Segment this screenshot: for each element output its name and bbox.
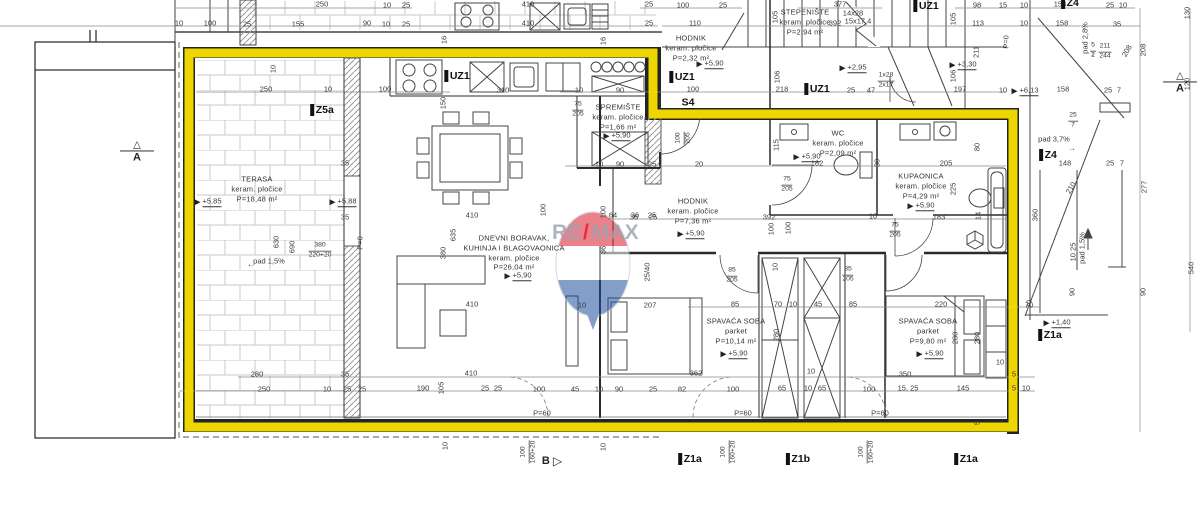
dimension-fraction: 100160+20 (859, 441, 876, 464)
dimension-label: P=60 (734, 409, 752, 417)
dimension-label: 377 (834, 0, 847, 8)
dimension-label: 10 (771, 263, 779, 271)
dimension-label: 145 (957, 384, 970, 392)
dimension-label: 10 (441, 442, 449, 450)
dimension-label: 85 (731, 300, 739, 308)
dimension-label: 410 (466, 300, 479, 308)
dimension-fraction: 100160+20 (521, 441, 538, 464)
section-triangle-icon: ▷ (553, 455, 562, 467)
dimension-label: 392 (829, 19, 842, 27)
dimension-label: 90 (363, 19, 371, 27)
dimension-label: 410 (522, 19, 535, 27)
dimension-label: 100 (677, 1, 690, 9)
dimension-label: 98 (973, 1, 981, 9)
reference-mark: UZ1 (444, 70, 469, 82)
section-triangle-icon: △ (1176, 71, 1184, 80)
dimension-label: 25 (402, 20, 410, 28)
dimension-label: 90 (616, 160, 624, 168)
reference-mark: S4 (682, 97, 695, 109)
dimension-label: 110 (689, 19, 701, 27)
section-marker: △A (120, 140, 154, 163)
mark-bar-icon (444, 70, 448, 82)
dimension-label: 158 (1056, 19, 1069, 27)
floor-plan: RE / MAX 2501025410251002537714x28981510… (0, 0, 1200, 506)
dimension-label: 10 (1022, 384, 1030, 392)
dimension-label: 100 (863, 385, 876, 393)
dimension-label: 350 (899, 370, 912, 378)
dimension-label: 205 (940, 159, 953, 167)
dimension-label: 15 (999, 1, 1007, 9)
dimension-label: 250 (258, 385, 271, 393)
elevation-label: +5,88 (330, 197, 357, 207)
dimension-label: 35 (341, 159, 349, 167)
dimension-label: 15x17,4 (845, 17, 872, 25)
annotation-layer: 2501025410251002537714x28981510158251010… (0, 0, 1200, 506)
reference-mark: Z5a (310, 104, 334, 116)
dimension-fraction: 85205 (842, 267, 853, 284)
dimension-label: 410 (466, 211, 479, 219)
elevation-label: +2,95 (840, 63, 867, 73)
dimension-label: P=60 (871, 409, 889, 417)
dimension-label: pad 3,7% (1038, 135, 1070, 143)
dimension-label: 25 (343, 385, 351, 393)
elevation-label: +5,90 (678, 229, 705, 239)
dimension-label: 105 (771, 11, 779, 24)
dimension-label: 7 (1117, 86, 1121, 94)
dimension-label: 207 (644, 301, 657, 309)
room-label: STEPENIŠTEkeram. pločiceP=2,94 m² (779, 7, 830, 36)
dimension-label: 64 (609, 211, 617, 219)
dimension-label: 36 (630, 213, 638, 221)
dimension-label: 15, 25 (898, 384, 919, 392)
dimension-label: 113 (972, 19, 984, 27)
reference-mark: Z1a (1038, 329, 1062, 341)
dimension-label: 10 (1119, 1, 1127, 9)
dimension-label: 211 (972, 46, 980, 58)
mark-bar-icon (669, 71, 673, 83)
slope-arrow-icon: ↑ (1087, 228, 1091, 236)
dimension-label: 25 (847, 86, 855, 94)
dimension-label: 360 (1031, 209, 1039, 222)
section-marker: △A (1163, 71, 1197, 94)
reference-mark: UZ1 (669, 71, 694, 83)
dimension-label: 65 (818, 384, 826, 392)
dimension-label: 630 (272, 236, 280, 249)
dimension-label: 208 (1139, 44, 1147, 57)
dimension-label: 45 (814, 300, 822, 308)
mark-bar-icon (804, 83, 808, 95)
dimension-label: 10 (269, 65, 277, 73)
dimension-fraction: 100205 (676, 131, 693, 144)
elevation-label: +5,90 (908, 201, 935, 211)
mark-bar-icon (786, 453, 790, 465)
dimension-label: 45 (571, 385, 579, 393)
dimension-label: 277 (1140, 181, 1148, 194)
dimension-fraction: 380220+20 (309, 243, 332, 260)
dimension-label: 25 (719, 1, 727, 9)
elevation-flag-icon (840, 65, 846, 71)
dimension-label: 150 (439, 97, 447, 110)
dimension-label: 158 (1057, 85, 1070, 93)
mark-bar-icon (1038, 329, 1042, 341)
dimension-label: 410 (522, 0, 535, 8)
elevation-flag-icon (1044, 320, 1050, 326)
section-triangle-icon: △ (133, 140, 141, 149)
dimension-label: 280 (772, 329, 780, 342)
elevation-flag-icon (1012, 88, 1018, 94)
dimension-label: P=0 (356, 236, 364, 250)
reference-mark: Z1b (786, 453, 810, 465)
dimension-label: 10 (804, 384, 812, 392)
dimension-label: 35 (341, 370, 349, 378)
mark-bar-icon (1061, 0, 1065, 9)
dimension-label: 10 (383, 1, 391, 9)
dimension-label: pad 1,5% (253, 257, 285, 265)
dimension-label: 10 (575, 86, 583, 94)
dimension-label: 90 (615, 385, 623, 393)
dimension-label: 250 (260, 85, 273, 93)
dimension-label: 25 (481, 384, 489, 392)
dimension-label: 10 (807, 367, 815, 375)
dimension-label: 10 (595, 385, 603, 393)
mark-bar-icon (310, 104, 314, 116)
dimension-label: 7 (1120, 159, 1124, 167)
dimension-fraction: 75205 (889, 223, 900, 240)
dimension-label: 10 (1020, 19, 1028, 27)
reference-mark: Z1a (678, 453, 702, 465)
dimension-fraction: 211244 (1099, 44, 1112, 61)
elevation-flag-icon (604, 133, 610, 139)
reference-mark: UZ1 (804, 83, 829, 95)
dimension-label: 105 (949, 13, 957, 26)
dimension-label: 380 (439, 247, 447, 260)
dimension-label: 392 (763, 213, 776, 221)
dimension-label: 10 (595, 160, 603, 168)
dimension-label: 208 (1121, 44, 1134, 59)
dimension-label: 30 (873, 159, 881, 167)
dimension-label: 82 (678, 385, 686, 393)
dimension-label: 90 (616, 86, 624, 94)
room-label: TERASAkeram. pločiceP=18,48 m² (231, 174, 282, 203)
room-label: SPAVAĆA SOBAparketP=10,14 m² (707, 316, 766, 345)
dimension-label: 410 (465, 369, 478, 377)
dimension-label: 70 (1025, 301, 1033, 309)
elevation-flag-icon (195, 199, 201, 205)
dimension-label: 65 (778, 384, 786, 392)
dimension-label: 25 (649, 385, 657, 393)
dimension-label: 25 (649, 213, 657, 221)
elevation-flag-icon (794, 154, 800, 160)
dimension-label: 70 (774, 300, 782, 308)
elevation-flag-icon (908, 203, 914, 209)
dimension-fraction: 75205 (781, 177, 792, 194)
elevation-flag-icon (950, 62, 956, 68)
dimension-label: 10 (382, 20, 390, 28)
dimension-fraction: 75205 (572, 102, 583, 119)
dimension-label: 106 (773, 71, 781, 84)
dimension-label: 100 (539, 204, 547, 217)
dimension-label: 10 (999, 86, 1007, 94)
elevation-label: +5,90 (604, 131, 631, 141)
dimension-label: 25 (494, 384, 502, 392)
slope-arrow-icon: ← (247, 260, 255, 268)
dimension-label: 100 (533, 385, 546, 393)
dimension-label: 10 (869, 212, 877, 220)
dimension-label: 362 (690, 369, 703, 377)
dimension-label: 130 (1183, 7, 1191, 20)
elevation-flag-icon (505, 273, 511, 279)
elevation-flag-icon (917, 351, 923, 357)
dimension-label: 105 (437, 382, 445, 395)
dimension-fraction: 257 (1068, 113, 1078, 130)
dimension-label: 25 (645, 19, 653, 27)
dimension-label: 35 (1113, 20, 1121, 28)
dimension-fraction: 100160+20 (721, 441, 738, 464)
dimension-label: 635 (449, 229, 457, 242)
dimension-label: 100 (687, 85, 700, 93)
dimension-label: pad 1,5% (1078, 232, 1086, 264)
dimension-label: 690 (288, 241, 296, 254)
dimension-label: 100 (599, 206, 607, 219)
dimension-label: 115 (772, 139, 780, 151)
dimension-label: 100 (204, 19, 217, 27)
dimension-label: 100 (727, 385, 740, 393)
dimension-label: 100 (784, 222, 792, 235)
dimension-label: 25 (358, 385, 366, 393)
dimension-label: 10 (324, 85, 332, 93)
dimension-label: 5 (973, 421, 981, 425)
dimension-label: 100 (379, 85, 392, 93)
dimension-label: 190 (417, 384, 430, 392)
dimension-fraction: 85205 (726, 268, 737, 285)
room-label: SPREMIŠTEkeram. pločiceP=1,66 m² (592, 102, 643, 131)
room-label: SPAVAĆA SOBAparketP=9,80 m² (899, 316, 958, 345)
room-label: KUPAONICAkeram. pločiceP=4,29 m² (895, 171, 946, 200)
dimension-label: 90 (1068, 288, 1076, 296)
dimension-label: 225 (949, 183, 957, 196)
dimension-label: 10 (599, 443, 607, 451)
dimension-label: 10 (996, 358, 1004, 366)
dimension-label: 10 (789, 300, 797, 308)
dimension-label: 16 (440, 36, 448, 44)
dimension-label: 218 (776, 85, 789, 93)
dimension-label: 10 (1020, 1, 1028, 9)
dimension-label: 250 (316, 0, 329, 8)
dimension-label: 85 (849, 300, 857, 308)
mark-bar-icon (678, 453, 682, 465)
elevation-label: +5,85 (195, 197, 222, 207)
dimension-label: 47 (867, 86, 875, 94)
elevation-label: +3,30 (950, 60, 977, 70)
elevation-flag-icon (330, 199, 336, 205)
dimension-label: P=0 (1002, 35, 1010, 49)
dimension-label: pad 2,8% (1081, 22, 1089, 54)
dimension-fraction: 1x282x17 (878, 73, 895, 90)
slope-arrow-icon: → (1068, 144, 1076, 152)
dimension-label: 16 (599, 37, 607, 45)
dimension-label: 14 (974, 212, 982, 220)
dimension-label: 10 (323, 385, 331, 393)
dimension-label: 10 25 (1069, 243, 1077, 262)
dimension-label: 10 (175, 19, 183, 27)
dimension-label: 25 (1104, 86, 1112, 94)
dimension-label: 280 (973, 332, 981, 345)
dimension-label: 540 (1187, 262, 1195, 275)
dimension-label: 25 (243, 20, 251, 28)
dimension-label: 100 (767, 223, 775, 236)
dimension-label: 10 (578, 301, 586, 309)
dimension-label: 25 (645, 0, 653, 8)
dimension-label: 25 (402, 1, 410, 9)
elevation-flag-icon (678, 231, 684, 237)
elevation-label: +6,13 (1012, 86, 1039, 96)
dimension-label: 197 (954, 85, 967, 93)
dimension-label: 210 (1065, 181, 1078, 196)
dimension-label: 183 (933, 213, 946, 221)
dimension-label: 80 (973, 143, 981, 151)
dimension-label: 148 (1059, 159, 1072, 167)
dimension-label: 5 (1012, 384, 1016, 392)
elevation-flag-icon (721, 351, 727, 357)
dimension-label: 5 (1012, 370, 1016, 378)
dimension-label: 280 (251, 370, 264, 378)
dimension-label: 25/40 (643, 263, 651, 282)
dimension-label: P=60 (533, 409, 551, 417)
room-label: WCkeram. pločiceP=2,09 m² (812, 128, 863, 157)
dimension-label: 155 (292, 20, 305, 28)
reference-mark: Z1a (954, 453, 978, 465)
dimension-label: 310 (497, 86, 510, 94)
dimension-fraction: 52 (1090, 43, 1096, 60)
room-label: HODNIKkeram. pločiceP=7,36 m² (667, 196, 718, 225)
dimension-label: 220 (935, 300, 948, 308)
dimension-label: 90 (1139, 288, 1147, 296)
dimension-label: 20 (695, 160, 703, 168)
dimension-label: 25 (1106, 1, 1114, 9)
reference-mark: UZ1 (913, 0, 938, 12)
dimension-label: 35 (341, 213, 349, 221)
dimension-label: 36 (599, 246, 607, 254)
elevation-label: +5,90 (917, 349, 944, 359)
elevation-label: +5,90 (721, 349, 748, 359)
mark-bar-icon (913, 0, 917, 12)
elevation-label: +5,90 (505, 271, 532, 281)
reference-mark: Z4 (1061, 0, 1079, 9)
elevation-label: +1,40 (1044, 318, 1071, 328)
room-label: DNEVNI BORAVAK,KUHINJA I BLAGOVAONICAker… (463, 234, 564, 273)
dimension-label: 25 (1106, 159, 1114, 167)
room-label: HODNIKkeram. pločiceP=2,32 m² (665, 33, 716, 62)
reference-mark: Z4 (1039, 149, 1057, 161)
dimension-label: 25 (648, 160, 656, 168)
mark-bar-icon (1039, 149, 1043, 161)
mark-bar-icon (954, 453, 958, 465)
section-marker: B▷ (542, 455, 562, 467)
dimension-label: 106 (949, 70, 957, 83)
